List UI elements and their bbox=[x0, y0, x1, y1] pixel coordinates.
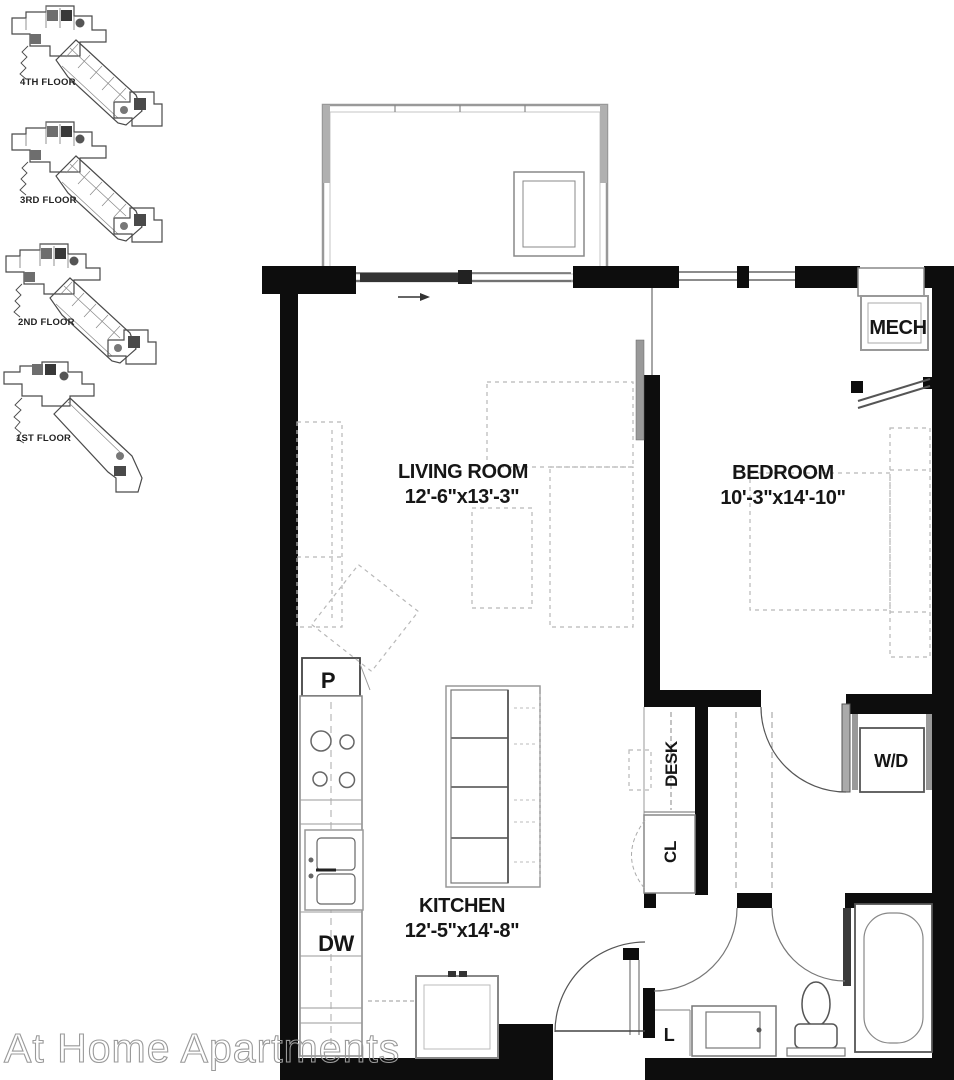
kitchen-label: KITCHEN bbox=[419, 895, 505, 917]
wd-closet: W/D bbox=[852, 714, 932, 792]
living-room: LIVING ROOM 12'-6"x13'-3" bbox=[297, 382, 633, 671]
vanity-sink bbox=[692, 1006, 776, 1056]
bathroom-door-arc-2 bbox=[772, 908, 845, 981]
mech-label: MECH bbox=[869, 317, 926, 339]
washer-dryer-label: W/D bbox=[874, 751, 908, 771]
floor-thumbnail-2nd: 2ND FLOOR bbox=[6, 244, 156, 364]
floor-label-2nd: 2ND FLOOR bbox=[18, 317, 75, 328]
living-room-dims: 12'-6"x13'-3" bbox=[405, 486, 519, 508]
pantry-box: P bbox=[302, 658, 370, 696]
balcony bbox=[323, 105, 607, 281]
bathtub bbox=[855, 904, 932, 1052]
balcony-table bbox=[514, 172, 584, 256]
bedroom-label: BEDROOM bbox=[732, 462, 834, 484]
closet-door-arc bbox=[632, 820, 646, 889]
bedroom-door-arc bbox=[761, 707, 846, 792]
floor-thumbnail-4th: 4TH FLOOR bbox=[12, 6, 162, 126]
kitchen-sink bbox=[305, 830, 363, 910]
floor-plan-svg: 4TH FLOOR 3RD FLOOR 2ND FLOOR 1ST FLOOR bbox=[0, 0, 954, 1080]
entry-hall-opening bbox=[630, 960, 639, 1035]
bedroom-dims: 10'-3"x14'-10" bbox=[720, 487, 845, 509]
floor-thumbnail-3rd: 3RD FLOOR bbox=[12, 122, 162, 242]
closet-label: CL bbox=[661, 841, 680, 863]
kitchen: P DW bbox=[300, 658, 540, 1058]
table-dashed bbox=[487, 382, 633, 467]
kitchen-dims: 12'-5"x14'-8" bbox=[405, 920, 519, 942]
desk-chair-dashed bbox=[629, 750, 651, 790]
bedroom-window bbox=[667, 266, 807, 288]
floor-label-4th: 4TH FLOOR bbox=[20, 77, 76, 88]
dishwasher-label: DW bbox=[318, 931, 354, 956]
watermark-text: At Home Apartments bbox=[4, 1025, 400, 1071]
coffee-table-dashed bbox=[472, 508, 532, 608]
desk-label: DESK bbox=[662, 740, 681, 787]
desk-nook: DESK CL bbox=[629, 707, 695, 893]
living-room-label: LIVING ROOM bbox=[398, 461, 528, 483]
bathroom: L bbox=[630, 904, 932, 1056]
floor-label-3rd: 3RD FLOOR bbox=[20, 195, 77, 206]
headboard-dashed bbox=[890, 428, 930, 657]
sectional-dashed bbox=[550, 467, 633, 627]
living-bedroom-wall bbox=[636, 288, 660, 690]
pantry-label: P bbox=[321, 668, 335, 693]
bedroom: BEDROOM 10'-3"x14'-10" bbox=[720, 428, 930, 657]
linen-label: L bbox=[664, 1025, 675, 1045]
closet-box: CL bbox=[632, 815, 696, 893]
bedroom-door bbox=[761, 704, 850, 792]
chair-dashed bbox=[312, 565, 419, 672]
pocket-door bbox=[636, 340, 644, 440]
floorplan-page: 4TH FLOOR 3RD FLOOR 2ND FLOOR 1ST FLOOR bbox=[0, 0, 954, 1080]
floor-label-1st: 1ST FLOOR bbox=[16, 433, 71, 444]
toilet bbox=[787, 982, 845, 1056]
floor-thumbnail-1st: 1ST FLOOR bbox=[4, 362, 142, 492]
mech-closet: MECH bbox=[851, 268, 934, 408]
kitchen-island bbox=[446, 686, 540, 887]
linen-closet: L bbox=[655, 1010, 690, 1056]
mech-door bbox=[851, 377, 934, 408]
bathroom-door-arc-1 bbox=[654, 908, 737, 991]
sofa-dashed bbox=[297, 422, 342, 627]
floor-thumbnails: 4TH FLOOR 3RD FLOOR 2ND FLOOR 1ST FLOOR bbox=[4, 6, 162, 492]
